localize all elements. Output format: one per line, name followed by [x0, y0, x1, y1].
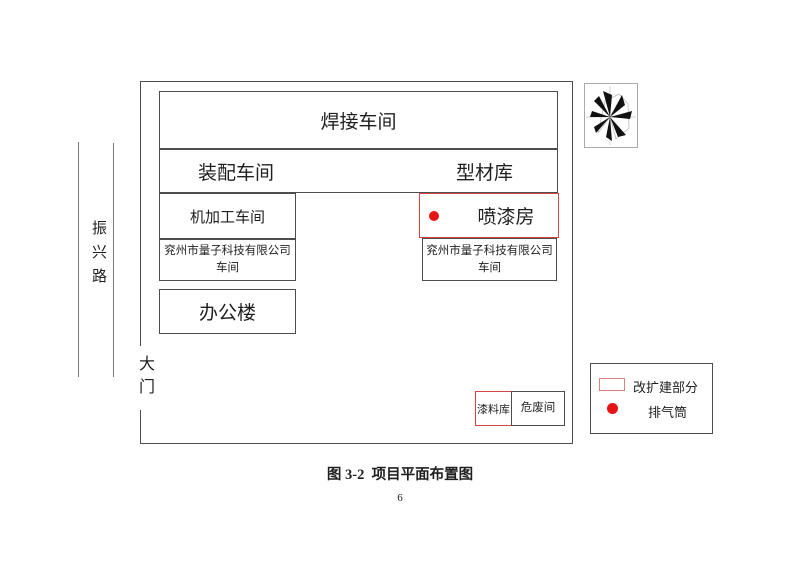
building-label-assembly: 装配车间: [198, 158, 274, 185]
building-office: 办公楼: [159, 289, 296, 334]
legend: 改扩建部分 排气筒: [590, 363, 713, 434]
exhaust-stack-dot-icon: [429, 211, 439, 221]
building-welding-workshop: 焊接车间: [159, 91, 558, 149]
building-label: 喷漆房: [477, 202, 534, 229]
road-line-right: [113, 143, 114, 377]
building-company-workshop-right: 兖州市量子科技有限公司 车间: [422, 238, 557, 281]
legend-red-rect-icon: [599, 378, 625, 391]
legend-item-label: 改扩建部分: [633, 377, 698, 396]
legend-item-label: 排气筒: [648, 402, 687, 421]
legend-red-dot-icon: [607, 403, 618, 414]
building-label: 办公楼: [199, 298, 256, 325]
building-label: 漆料库: [477, 401, 510, 417]
building-label: 焊接车间: [320, 107, 396, 134]
building-machining-workshop: 机加工车间: [159, 193, 296, 239]
company-name-line2: 车间: [478, 260, 501, 277]
building-hazardous-waste-room: 危废间: [511, 391, 565, 426]
site-boundary-left-lower: [140, 410, 141, 444]
building-company-workshop-left: 兖州市量子科技有限公司 车间: [159, 239, 296, 281]
company-name-line1: 兖州市量子科技有限公司: [164, 243, 291, 260]
wind-rose-icon: [584, 83, 638, 148]
page-number: 6: [0, 492, 800, 504]
building-paint-material-store: 漆料库: [475, 391, 512, 426]
figure-caption: 图 3-2 项目平面布置图: [0, 463, 800, 484]
building-paint-spray-room: 喷漆房: [419, 193, 559, 238]
company-name-line1: 兖州市量子科技有限公司: [426, 243, 553, 260]
building-label: 机加工车间: [190, 206, 265, 227]
building-assembly-band: 装配车间 型材库: [159, 149, 558, 193]
building-label-profile-warehouse: 型材库: [456, 158, 513, 185]
document-page: 振兴路 大门 焊接车间 装配车间 型材库 机加工车间 兖州市量子科技有限公司 车…: [0, 0, 800, 566]
gate-label: 大门: [132, 355, 156, 401]
site-boundary-left-upper: [140, 81, 141, 346]
building-label: 危废间: [521, 400, 556, 417]
road-line-left: [78, 142, 79, 377]
company-name-line2: 车间: [216, 260, 239, 277]
road-label: 振兴路: [88, 220, 109, 292]
